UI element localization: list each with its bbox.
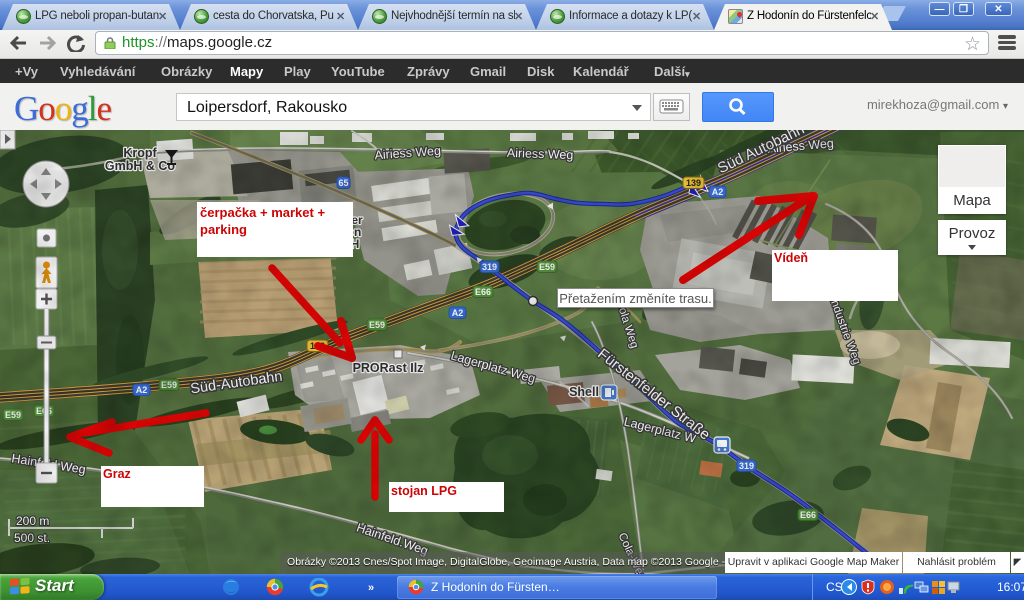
svg-text:»: »: [368, 582, 374, 594]
